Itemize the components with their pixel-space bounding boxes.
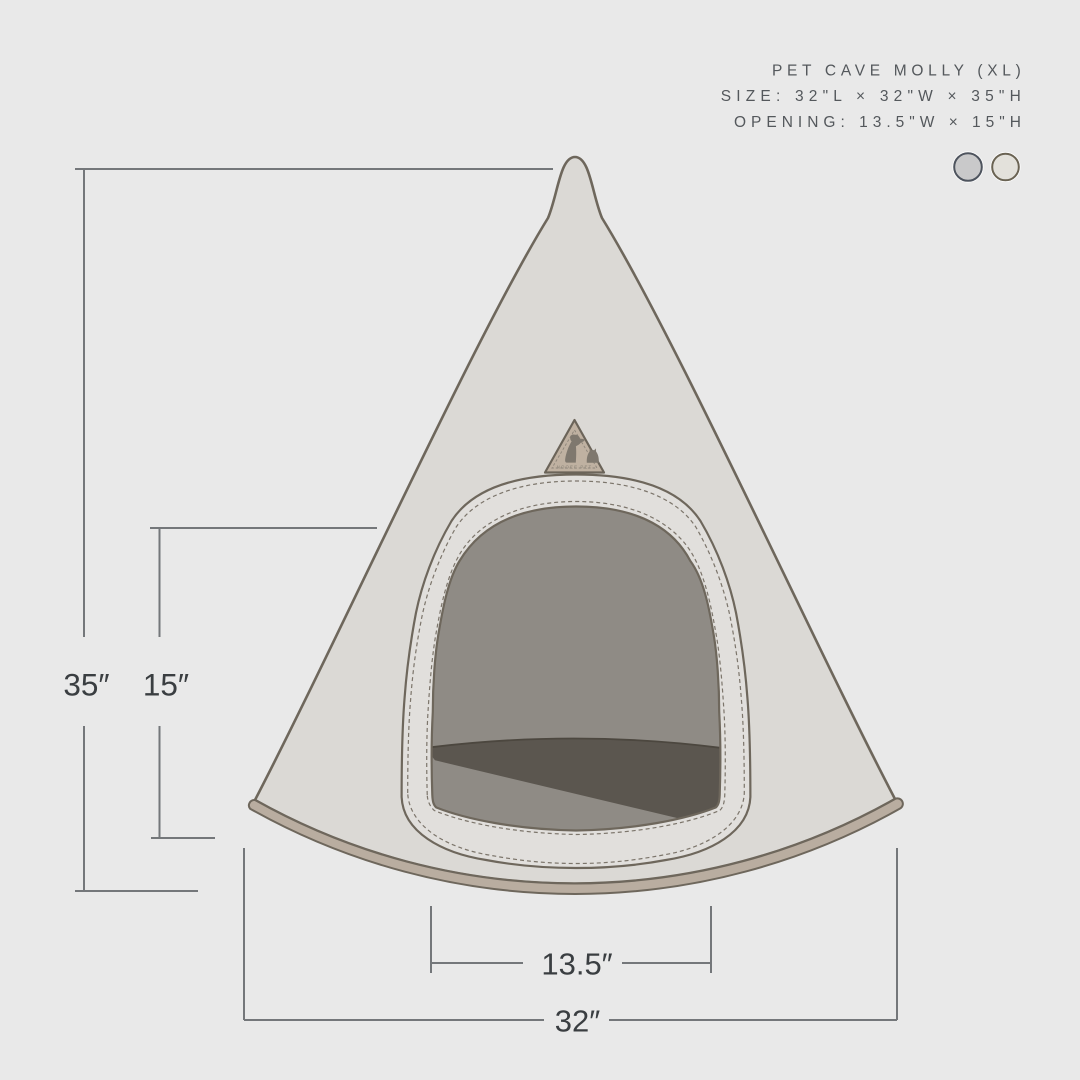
svg-text:13.5″: 13.5″ <box>541 947 612 982</box>
svg-text:35″: 35″ <box>63 667 109 703</box>
svg-text:SIZE: 32"L × 32"W × 35"H: SIZE: 32"L × 32"W × 35"H <box>721 88 1026 105</box>
svg-text:15″: 15″ <box>143 667 189 703</box>
svg-text:32″: 32″ <box>555 1004 600 1039</box>
svg-text:OPENING: 13.5"W × 15"H: OPENING: 13.5"W × 15"H <box>734 114 1026 131</box>
svg-text:PET CAVE MOLLY (XL): PET CAVE MOLLY (XL) <box>772 63 1026 80</box>
svg-text:NOOEE PET: NOOEE PET <box>557 465 593 470</box>
